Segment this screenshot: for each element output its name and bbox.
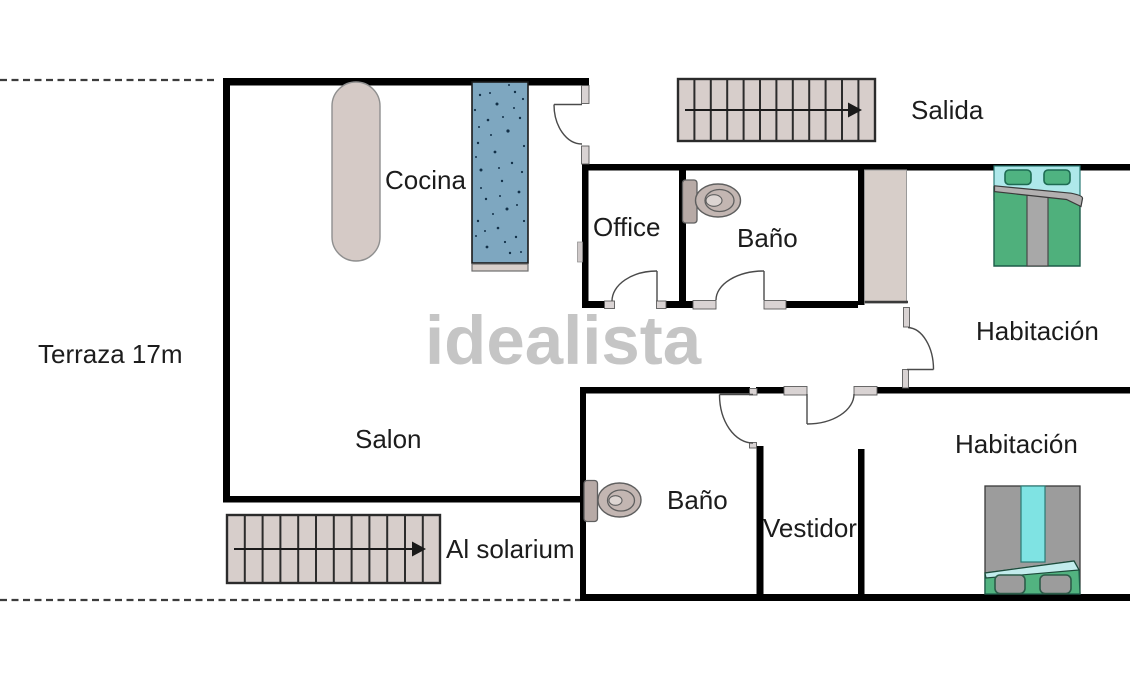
svg-text:Baño: Baño — [737, 223, 798, 253]
svg-text:idealista: idealista — [425, 302, 702, 379]
svg-text:Salon: Salon — [355, 424, 422, 454]
svg-text:Baño: Baño — [667, 485, 728, 515]
svg-text:Habitación: Habitación — [955, 429, 1078, 459]
svg-text:Terraza 17m: Terraza 17m — [38, 339, 183, 369]
svg-text:Habitación: Habitación — [976, 316, 1099, 346]
svg-text:Vestidor: Vestidor — [763, 513, 857, 543]
svg-text:Office: Office — [593, 212, 660, 242]
svg-text:Salida: Salida — [911, 95, 984, 125]
svg-text:Al solarium: Al solarium — [446, 534, 575, 564]
svg-text:Cocina: Cocina — [385, 165, 466, 195]
